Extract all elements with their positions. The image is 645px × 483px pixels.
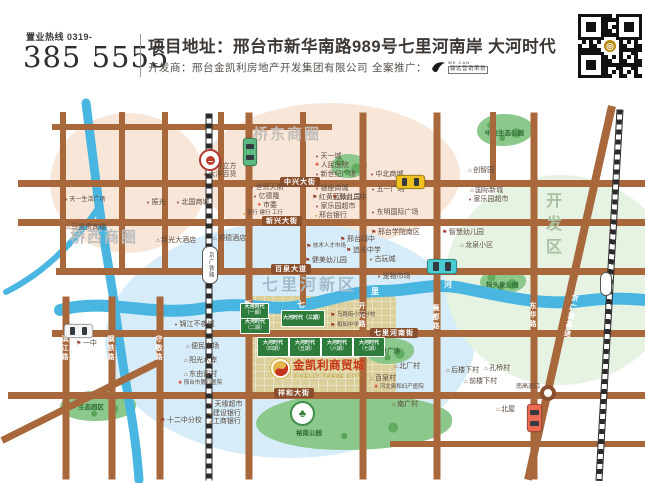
road-3 [56,268,645,275]
poi-label: ▼古玩城 [369,256,395,263]
railway-station-icon-core [206,156,215,165]
phase-block: 大河时代（一期） [240,303,269,319]
mall-icon: ▼ [146,201,150,205]
school-icon: ⚑ [76,341,81,347]
poi-label: 南高速口 [516,384,540,390]
poi-label: ▼天一生活广场 [64,197,105,203]
poi-label: ▼天缘超市 [209,401,242,408]
poi-label: ⚑智慧幼儿园 [442,229,484,236]
poi-text: 人民医院 [321,162,349,169]
road-name-vertical: 滨江路 [61,335,68,362]
mall-icon: ▼ [377,275,381,279]
road-name-vertical: 守敬路 [155,335,162,362]
car-window [530,410,538,415]
poi-text: 新世纪广场 [320,171,355,178]
car-window [433,262,439,270]
poi-label: ⌂新光大酒店 [156,237,196,244]
school-icon: ⚑ [442,230,447,236]
poi-label: ✚人民医院 [315,162,349,169]
village-icon: ⌂ [370,376,374,382]
hotel-icon: ⌂ [156,238,160,244]
road-banner: 百泉大道 [271,264,311,274]
village-icon: ⌂ [468,168,472,174]
poi-label: ⌂北屋 [496,406,515,413]
poi-label: ⚑相如中学 [330,323,359,329]
poi-text: 创智园 [473,167,494,174]
poi-text: 便民市场 [191,343,219,350]
poi-text: 市委 [263,202,277,209]
poi-text: 新光大酒店 [161,237,196,244]
mall-icon: ▼ [203,173,207,177]
school-icon: ⚑ [306,244,311,250]
hotel-icon: ⌂ [213,236,217,242]
school-icon: ⚑ [330,313,335,319]
poi-label: ⌂龙泉小区 [460,242,493,249]
road-7 [60,112,66,273]
poi-text: 邢台市第四医院 [184,381,223,387]
mall-icon: ▼ [315,173,319,177]
car-white [64,324,93,338]
zone-label: 开发区 [543,192,559,261]
phase-block: 大河时代（三期） [281,310,325,327]
poi-label: ●工商银行 [209,418,241,425]
poi-text: 孔桥村 [489,365,510,372]
poi-text: 相如中学 [337,323,359,329]
car-window [246,155,254,160]
car-green [243,138,257,166]
mall-icon: ▼ [371,211,375,215]
road-6 [390,441,645,447]
village-icon: ⌂ [460,243,464,249]
poi-label: ▼东明国际广场 [371,209,418,216]
poi-label: ⚑邢台四中 [340,236,375,243]
mall-icon: ▼ [315,205,319,209]
poi-label: ⌂南广村 [392,401,418,408]
poi-text: 家乐园超市 [473,196,508,203]
poi-label: ▼北国商城 [176,199,209,206]
poi-label: ▼亿德隆 [253,193,279,200]
phase-block: 大河时代（七期） [353,337,385,357]
poi-label: ⚑马路街小学分校 [330,313,375,319]
phase-block-phase: （七期） [359,347,379,353]
poi-text: 建设银行 [213,410,241,417]
poi-text: 世贸天街 [255,184,283,191]
poi-label: ⚑追光中学 [346,247,381,254]
poi-text: 工商银行 [213,418,241,425]
railway-label-oval: 京广铁路 [202,246,218,284]
poi-text: 河北奥和妇产医院 [380,385,424,391]
poi-text: 马路街小学分校 [337,313,376,319]
mall-icon: ▼ [176,201,180,205]
interchange-ring [540,385,556,401]
hospital-icon: ✚ [315,163,319,168]
ad-page: 置业热线 0319- 385 5555 项目地址：邢台市新华南路989号七里河南… [0,0,645,483]
phase-block-phase: （四期） [263,347,283,353]
mall-icon: ▼ [370,173,374,177]
school-icon: ⚑ [160,418,165,424]
poi-text: 北屋 [501,406,515,413]
poi-text: 百泉村 [375,375,396,382]
mall-icon: ▼ [371,188,375,192]
poi-text: 技术人才市场 [313,244,346,250]
road-name-vertical: 东华路 [529,302,536,329]
poi-label: ⌂百泉村 [370,375,396,382]
hospital-icon: ✚ [374,385,378,390]
village-icon: ⌂ [184,358,188,364]
bank-icon: ● [209,412,211,416]
poi-text: 北厂村 [399,363,420,370]
railway-station-icon [199,149,221,171]
road-name-vertical: 钢铁路 [107,335,114,362]
phase-block-label: 大河时代（三期） [283,316,323,322]
village-icon: ⌂ [186,344,190,350]
poi-text: 后楼下村 [451,367,479,374]
poi-text: 邢台银行 [319,212,347,219]
poi-label: ⚑一中 [76,340,97,347]
zone-label: 七里河新区 [262,278,357,294]
poi-label: ▼锦江不夜城 [174,321,214,328]
poi-label: ▼宠物市场 [377,273,410,280]
poi-text: 银座商城 [320,185,348,192]
poi-text: 智慧幼儿园 [449,229,484,236]
poi-label: ●建设银行 [209,410,241,417]
road-17 [434,112,441,479]
village-icon: ⌂ [496,407,500,413]
poi-text: 东由留村 [189,371,217,378]
river-name-char: 七 [297,301,305,309]
poi-text: 南广村 [397,401,418,408]
phase-block: 大河时代（二期） [240,318,270,334]
poi-label: ✚邢台市第四医院 [178,381,222,387]
poi-label: ⌂便民市场 [186,343,219,350]
poi-label: ⚑邢台学院南区 [371,229,420,236]
school-icon: ⚑ [330,323,335,329]
poi-text: 北国商城 [181,199,209,206]
phase-block: 大河时代（五期） [289,337,321,357]
poi-text: 阳光水岸 [189,357,217,364]
phase-block-phase: （六期） [327,347,347,353]
poi-text: 邢台学院南区 [378,229,420,236]
poi-text: 追光中学 [353,247,381,254]
road-14 [246,112,253,479]
poi-label: ⌂马凯贵宾楼 [66,224,106,231]
poi-label: ⌂后楼下村 [446,367,479,374]
hotel-icon: ⌂ [66,225,70,231]
phase-block: 大河时代（六期） [321,337,353,357]
poi-label: ▼银座商城 [315,185,348,192]
poi-label: ▼家乐园超市 [315,203,355,210]
poi-text: 振光 [151,199,165,206]
car-teal [427,259,457,274]
village-icon: ⌂ [464,379,468,385]
poi-text: 顺德酒店 [218,235,246,242]
poi-text: 大洋百货 [208,171,236,178]
school-icon: ⚑ [332,195,337,201]
project-logo-icon [270,358,291,379]
poi-text: 亿德隆 [258,193,279,200]
road-13 [157,296,164,479]
car-window [445,262,451,270]
car-window [530,421,538,426]
school-icon: ⚑ [340,237,345,243]
poi-text: 锦江不夜城 [179,321,214,328]
road-9 [162,112,168,273]
poi-label: ★市委 [257,202,277,209]
mall-icon: ▼ [468,198,472,202]
poi-label: ▼世贸天街 [250,184,283,191]
zone-label: 桥东商圈 [253,127,321,142]
car-window [402,178,407,186]
mall-icon: ▼ [174,323,178,327]
railway-name-label: 京广铁路 [207,252,213,278]
poi-label: ⚑技术人才市场 [306,244,346,250]
poi-label: ⚑十二中分校 [160,417,202,424]
road-banner: 祥和大街 [274,388,314,398]
phase-block-phase: （一期） [244,311,264,317]
phase-block-phase: （五期） [295,347,315,353]
road-banner: 新兴大街 [262,216,302,226]
poi-label: ●农行 建行 工行 [243,211,283,217]
phase-block-phase: （二期） [245,326,265,332]
poi-label: ⌂顺德酒店 [213,235,246,242]
poi-text: 天一城 [320,153,341,160]
phase-block: 大河时代（四期） [257,337,289,357]
school-icon: ⚑ [312,195,317,201]
mall-icon: ▼ [369,258,373,262]
mall-icon: ▼ [209,403,213,407]
mall-icon: ▼ [64,198,68,202]
poi-text: 农行 建行 工行 [247,211,283,217]
train-marker [600,272,612,296]
project-logo-title: 金凯利商贸城 [293,361,365,373]
bank-icon: ● [243,212,245,216]
poi-text: 家乐园超市 [320,203,355,210]
road-18 [490,112,496,186]
poi-text: 一中 [83,340,97,347]
poi-text: 国际新城 [475,187,503,194]
mall-icon: ▼ [315,155,319,159]
poi-text: 龙泉小区 [465,242,493,249]
hospital-icon: ✚ [178,381,182,386]
car-window [70,327,75,335]
poi-label: ▼天一城 [315,153,341,160]
river-name-char: 里 [371,288,379,296]
school-icon: ⚑ [346,248,351,254]
river-name-char: 河 [444,281,452,289]
poi-text: 十二中分校 [167,417,202,424]
village-icon: ⌂ [446,368,450,374]
village-icon: ⌂ [484,366,488,372]
poi-text: 邢台二中 [339,194,367,201]
bank-icon: ● [209,420,211,424]
mall-icon: ▼ [253,195,257,199]
poi-label: ⌂阳光水岸 [184,357,217,364]
poi-text: 天一生活广场 [69,197,105,203]
poi-text: 健美幼儿园 [312,257,347,264]
road-10 [218,112,224,273]
poi-text: 前楼下村 [469,378,497,385]
road-16 [360,112,367,479]
car-window [246,144,254,149]
gov-icon: ★ [257,203,261,208]
village-icon: ⌂ [392,402,396,408]
poi-label: ⌂创智园 [468,167,494,174]
poi-label: ⌂北厂村 [394,363,420,370]
poi-label: ⚑邢台二中 [332,194,367,201]
zone-label: 桥西商圈 [70,230,138,245]
car-window [82,327,87,335]
mall-icon: ▼ [315,187,319,191]
poi-label: ●邢台银行 [315,212,347,219]
poi-label: ▼大洋百货 [203,171,236,178]
poi-text: 邢台四中 [347,236,375,243]
poi-label: ⌂孔桥村 [484,365,510,372]
school-icon: ⚑ [371,230,376,236]
poi-label: ▼振光 [146,199,165,206]
poi-label: ⚑健美幼儿园 [305,257,347,264]
car-yellow [396,175,425,189]
logo-swirl [271,359,290,378]
road-name-vertical: 襄都路 [432,304,439,331]
poi-text: 天缘超市 [214,401,242,408]
poi-label: ▼家乐园超市 [468,196,508,203]
poi-label: ✚河北奥和妇产医院 [374,385,424,391]
car-window [414,178,419,186]
poi-text: 马凯贵宾楼 [71,224,106,231]
poi-text: 东明国际广场 [376,209,418,216]
poi-text: 宠物市场 [382,273,410,280]
poi-text: 古玩城 [374,256,395,263]
project-logo-sub: J-KELLY TRADE CITY [294,375,362,380]
bank-icon: ● [315,214,317,218]
poi-text: 南高速口 [516,384,540,390]
poi-label: ⌂国际新城 [470,187,503,194]
mall-icon: ▼ [250,186,254,190]
poi-label: ⌂前楼下村 [464,378,497,385]
village-icon: ⌂ [184,372,188,378]
poi-label: ▼新世纪广场 [315,171,355,178]
village-icon: ⌂ [394,364,398,370]
village-icon: ⌂ [470,188,474,194]
car-red [527,404,542,432]
school-icon: ⚑ [305,258,310,264]
poi-label: ⌂东由留村 [184,371,217,378]
road-8 [119,112,125,273]
road-banner: 中兴大街 [280,177,320,187]
